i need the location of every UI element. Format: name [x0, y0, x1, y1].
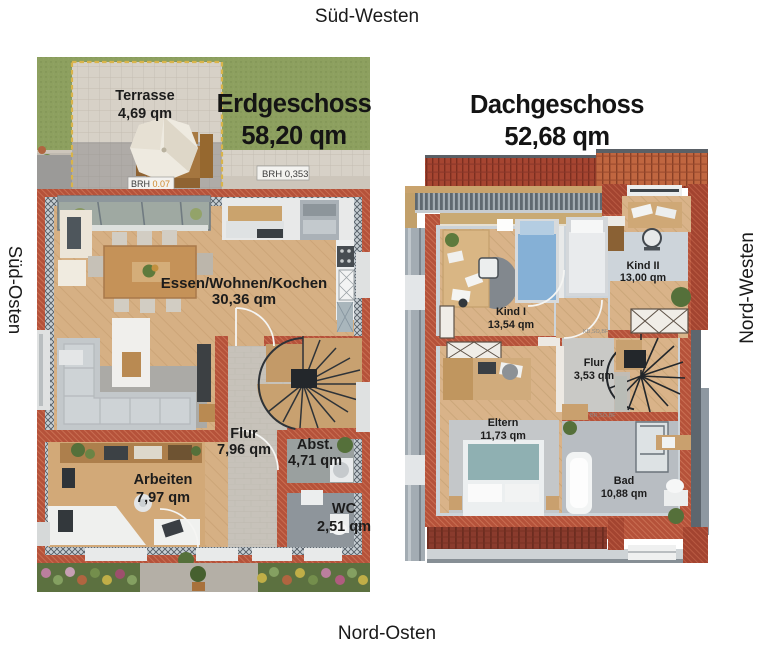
svg-text:13,00 qm: 13,00 qm	[620, 272, 666, 284]
svg-text:10,88 qm: 10,88 qm	[601, 488, 647, 500]
svg-text:WC: WC	[332, 501, 357, 517]
svg-text:Erdgeschoss: Erdgeschoss	[217, 90, 372, 118]
svg-text:2,51 qm: 2,51 qm	[317, 519, 371, 535]
svg-text:BRH 0.07: BRH 0.07	[131, 179, 170, 189]
svg-text:BR,SO,BF: BR,SO,BF	[590, 413, 616, 419]
svg-text:58,20 qm: 58,20 qm	[241, 122, 346, 150]
svg-text:Bad: Bad	[614, 475, 634, 487]
svg-text:11,73 qm: 11,73 qm	[480, 430, 526, 442]
svg-text:Nord-Westen: Nord-Westen	[737, 232, 758, 344]
svg-text:Essen/Wohnen/Kochen: Essen/Wohnen/Kochen	[161, 275, 327, 292]
svg-text:30,36 qm: 30,36 qm	[212, 291, 276, 308]
svg-text:Kind II: Kind II	[627, 260, 660, 272]
svg-text:52,68 qm: 52,68 qm	[504, 123, 609, 151]
svg-text:Süd-Osten: Süd-Osten	[5, 246, 26, 334]
svg-text:Flur: Flur	[584, 357, 605, 369]
svg-text:BRH 0,353: BRH 0,353	[262, 169, 308, 180]
svg-text:Süd-Westen: Süd-Westen	[315, 6, 419, 27]
svg-text:4,71 qm: 4,71 qm	[288, 453, 342, 469]
svg-text:7,97 qm: 7,97 qm	[136, 490, 190, 506]
svg-text:Kind I: Kind I	[496, 306, 526, 318]
svg-text:7,96 qm: 7,96 qm	[217, 442, 271, 458]
svg-text:Terrasse: Terrasse	[115, 88, 174, 104]
svg-text:3,53 qm: 3,53 qm	[574, 370, 614, 382]
svg-text:Flur: Flur	[230, 426, 258, 442]
svg-text:Nord-Osten: Nord-Osten	[338, 623, 436, 644]
svg-text:Dachgeschoss: Dachgeschoss	[470, 91, 644, 119]
svg-text:KB,SO,BF: KB,SO,BF	[583, 329, 609, 335]
svg-text:Arbeiten: Arbeiten	[134, 472, 193, 488]
svg-text:13,54 qm: 13,54 qm	[488, 319, 534, 331]
svg-text:Abst.: Abst.	[297, 437, 333, 453]
svg-text:4,69 qm: 4,69 qm	[118, 106, 172, 122]
svg-text:Eltern: Eltern	[488, 417, 519, 429]
